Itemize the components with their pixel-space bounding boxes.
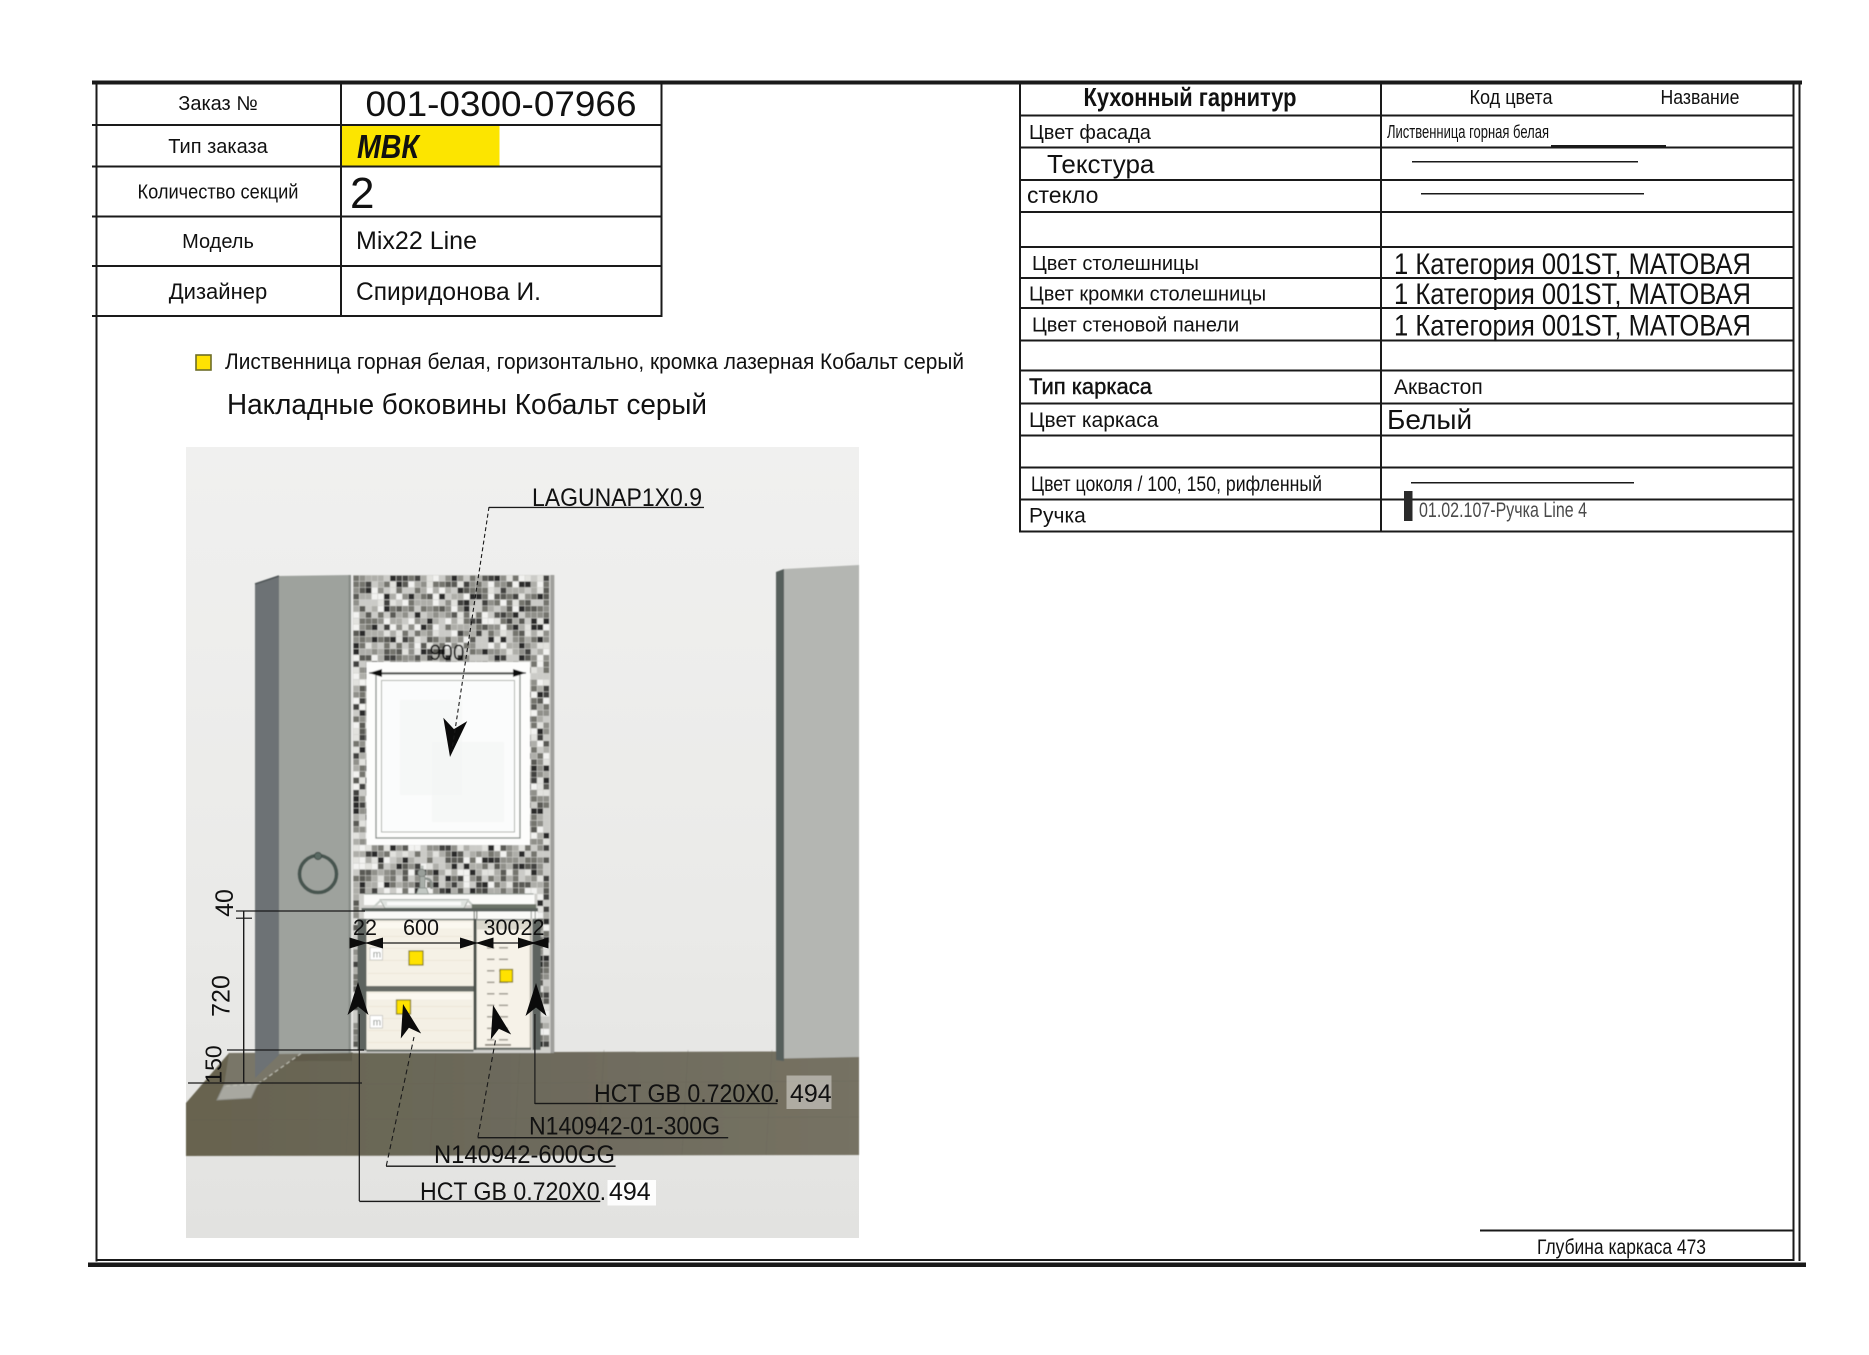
svg-text:Цвет стеновой панели: Цвет стеновой панели [1032,315,1239,337]
svg-text:1 Категория 001ST, МАТОВАЯ: 1 Категория 001ST, МАТОВАЯ [1394,248,1751,281]
svg-text:Лиственница горная белая, гори: Лиственница горная белая, горизонтально,… [225,349,964,374]
svg-text:600: 600 [403,915,439,940]
svg-text:МВК: МВК [357,128,421,165]
svg-text:Дизайнер: Дизайнер [169,279,267,304]
svg-text:01.02.107-Ручка Line 4: 01.02.107-Ручка Line 4 [1419,499,1587,522]
svg-text:HCT GB 0.720X0.: HCT GB 0.720X0. [420,1178,606,1206]
svg-text:Аквастоп: Аквастоп [1394,376,1483,399]
svg-text:001-0300-07966: 001-0300-07966 [366,85,637,124]
svg-text:стекло: стекло [1027,182,1098,208]
svg-text:150: 150 [201,1045,227,1083]
svg-text:494: 494 [609,1178,651,1206]
svg-text:Код цвета: Код цвета [1470,87,1554,109]
svg-text:Цвет кромки столешницы: Цвет кромки столешницы [1029,284,1266,306]
svg-text:Тип заказа: Тип заказа [168,136,268,158]
svg-text:Цвет каркаса: Цвет каркаса [1029,409,1159,432]
svg-text:m: m [373,1018,381,1029]
svg-text:22: 22 [353,915,377,940]
svg-text:Заказ №: Заказ № [178,93,257,115]
svg-text:40: 40 [211,889,239,917]
svg-text:Модель: Модель [182,231,254,253]
svg-text:Цвет столешницы: Цвет столешницы [1032,253,1199,275]
svg-text:494: 494 [790,1080,832,1108]
svg-text:Mix22 Line: Mix22 Line [356,227,477,255]
svg-text:Количество секций: Количество секций [138,182,299,204]
svg-text:Название: Название [1661,87,1740,109]
svg-text:1 Категория 001ST, МАТОВАЯ: 1 Категория 001ST, МАТОВАЯ [1394,310,1751,343]
svg-text:Ручка: Ручка [1029,505,1086,528]
svg-text:Белый: Белый [1387,404,1472,435]
svg-text:HCT GB 0.720X0.: HCT GB 0.720X0. [594,1080,780,1108]
svg-text:Кухонный гарнитур: Кухонный гарнитур [1084,82,1297,112]
svg-text:Текстура: Текстура [1047,149,1155,179]
svg-text:Цвет цоколя / 100, 150, рифлен: Цвет цоколя / 100, 150, рифленный [1031,473,1322,496]
svg-text:2: 2 [350,169,374,218]
svg-text:Цвет фасада: Цвет фасада [1029,122,1152,144]
svg-text:N140942-600GG: N140942-600GG [434,1141,615,1169]
svg-text:Накладные боковины Кобальт сер: Накладные боковины Кобальт серый [227,389,707,421]
svg-text:Тип каркаса: Тип каркаса [1029,374,1153,399]
svg-text:900: 900 [430,640,465,665]
svg-text:22: 22 [521,915,545,940]
svg-text:1 Категория 001ST, МАТОВАЯ: 1 Категория 001ST, МАТОВАЯ [1394,278,1751,311]
svg-text:Глубина каркаса 473: Глубина каркаса 473 [1537,1236,1706,1259]
svg-text:m: m [373,950,381,961]
svg-text:Спиридонова И.: Спиридонова И. [356,278,541,306]
svg-text:N140942-01-300G: N140942-01-300G [529,1113,720,1141]
svg-text:300: 300 [484,915,520,940]
svg-text:Лиственница горная белая: Лиственница горная белая [1387,122,1549,142]
svg-text:720: 720 [208,975,236,1017]
